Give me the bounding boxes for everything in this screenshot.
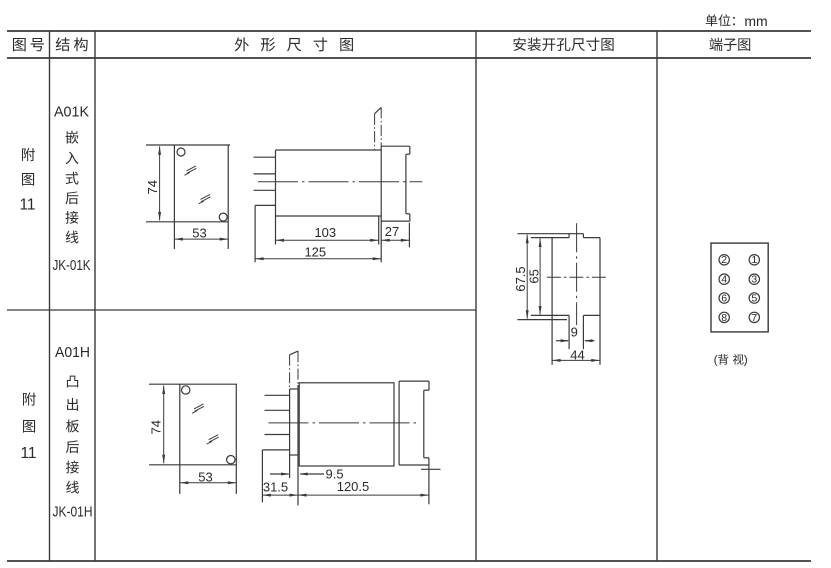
svg-text:2: 2	[721, 254, 727, 266]
svg-text:A01K: A01K	[54, 104, 89, 121]
svg-text:4: 4	[721, 274, 727, 286]
svg-text:7: 7	[751, 312, 757, 324]
svg-text:74: 74	[145, 180, 160, 194]
svg-text:8: 8	[721, 312, 727, 324]
svg-text:103: 103	[314, 225, 336, 240]
svg-text:11: 11	[20, 445, 36, 462]
svg-text:(: (	[714, 353, 718, 367]
svg-text:53: 53	[192, 226, 206, 241]
svg-text:74: 74	[149, 420, 164, 434]
svg-text:9: 9	[571, 324, 578, 339]
svg-text:27: 27	[385, 224, 399, 239]
svg-text:): )	[744, 353, 748, 367]
svg-text:65: 65	[526, 269, 541, 283]
svg-text:31.5: 31.5	[263, 480, 288, 495]
svg-text:3: 3	[751, 274, 757, 286]
svg-text:44: 44	[570, 347, 584, 362]
svg-text:120.5: 120.5	[337, 479, 370, 494]
svg-text:11: 11	[19, 197, 35, 214]
svg-text:JK-01K: JK-01K	[53, 257, 91, 274]
svg-text:1: 1	[751, 254, 757, 266]
svg-text:6: 6	[721, 292, 727, 304]
svg-text:JK-01H: JK-01H	[53, 504, 93, 521]
svg-text:5: 5	[751, 292, 757, 304]
svg-text:A01H: A01H	[55, 344, 90, 361]
svg-text:mm: mm	[744, 13, 767, 29]
svg-text:125: 125	[304, 245, 326, 260]
svg-text:53: 53	[198, 469, 212, 484]
